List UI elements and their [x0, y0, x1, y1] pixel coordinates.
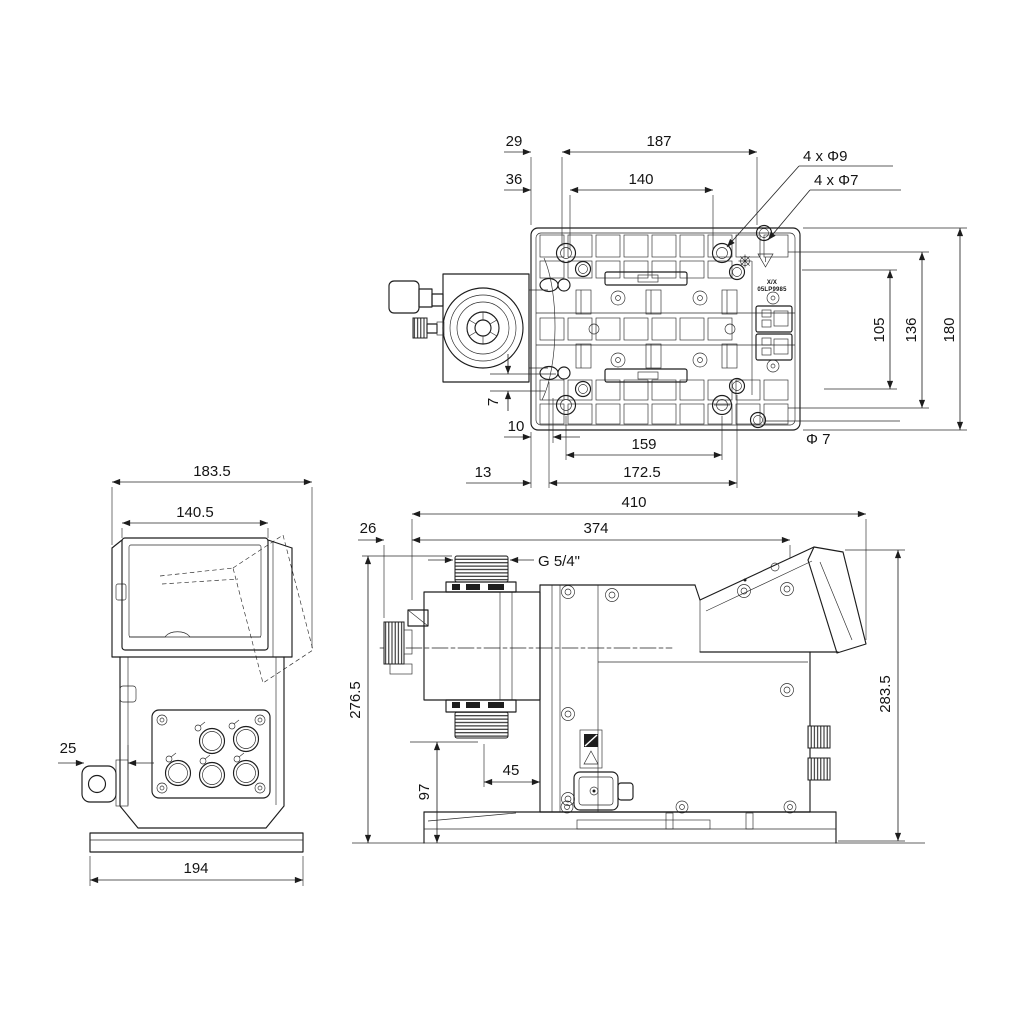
dim-172-5: 172.5 [549, 382, 737, 488]
dim-105-label: 105 [871, 317, 888, 342]
dim-10: 10 [504, 398, 580, 488]
drawing-svg: X/X 05LP9985 [0, 0, 1024, 1024]
dim-140-5: 140.5 [122, 504, 268, 538]
open-cover-dashed [160, 535, 313, 683]
wall-bracket [82, 760, 128, 806]
dim-183-5-label: 183.5 [193, 463, 231, 480]
top-view-dimensions: 29 187 36 140 4 x Φ9 4 x Φ7 [466, 133, 967, 488]
dim-140-label: 140 [628, 171, 653, 188]
side-view-dimensions: 410 374 26 G 5/4" 276.5 [347, 494, 905, 843]
leader-4x-dia7: 4 x Φ7 [768, 172, 901, 240]
dim-283-5-label: 283.5 [877, 675, 894, 713]
dim-140: 140 [570, 171, 713, 190]
dim-45: 45 [484, 744, 540, 787]
connector-plate [152, 710, 270, 798]
leader-dia7-label: Φ 7 [806, 431, 830, 448]
front-view: 183.5 140.5 25 194 [58, 463, 313, 886]
front-base [90, 833, 303, 852]
dim-187-label: 187 [646, 133, 671, 150]
dim-29: 29 [504, 133, 531, 152]
dim-172-5-label: 172.5 [623, 464, 661, 481]
side-view: 410 374 26 G 5/4" 276.5 [347, 494, 925, 843]
side-cable-glands [808, 726, 830, 780]
dim-159-label: 159 [631, 436, 656, 453]
dim-45-label: 45 [503, 762, 520, 779]
top-view: X/X 05LP9985 [389, 133, 967, 488]
dim-13: 13 [466, 464, 531, 483]
dim-374-label: 374 [583, 520, 608, 537]
leader-4x-dia9: 4 x Φ9 [727, 148, 893, 247]
dim-180: 180 [941, 228, 960, 430]
side-housing [540, 547, 866, 812]
side-base [424, 801, 836, 843]
dim-36: 36 [504, 171, 531, 190]
dim-105: 105 [871, 270, 890, 389]
dim-25-label: 25 [60, 740, 77, 757]
front-housing [112, 535, 313, 828]
clamp-brackets [576, 290, 737, 368]
mains-connector [574, 772, 633, 810]
motor-connector [389, 281, 443, 313]
dim-410-label: 410 [621, 494, 646, 511]
dim-410: 410 [412, 494, 866, 514]
dim-7-label: 7 [485, 398, 502, 406]
dim-183-5: 183.5 [112, 463, 312, 482]
plate-connector-panel [756, 292, 792, 372]
mounting-plate: X/X 05LP9985 [531, 226, 800, 431]
cable-glands [166, 720, 259, 788]
pump-head-side-view [380, 556, 672, 738]
dim-26: 26 [358, 520, 384, 618]
dim-136-label: 136 [903, 317, 920, 342]
side-valve-assembly [384, 610, 428, 674]
tilted-control-panel [695, 547, 866, 653]
dim-180-label: 180 [941, 317, 958, 342]
dim-36-label: 36 [506, 171, 523, 188]
thread-label-text: G 5/4" [538, 553, 580, 570]
dim-13-label: 13 [475, 464, 492, 481]
suction-thread [455, 712, 508, 738]
control-panel [122, 538, 268, 650]
dim-194-label: 194 [183, 860, 208, 877]
engineering-drawing-canvas: X/X 05LP9985 [0, 0, 1024, 1024]
dim-283-5: 283.5 [838, 550, 905, 841]
dim-194: 194 [90, 856, 303, 886]
dim-97: 97 [410, 742, 478, 843]
dim-276-5-label: 276.5 [347, 681, 364, 719]
pump-head-top-view [389, 258, 555, 400]
dim-97-label: 97 [416, 784, 433, 801]
plate-label-top: X/X [767, 280, 777, 286]
dim-159: 159 [566, 416, 722, 460]
plate-label-bottom: 05LP9985 [757, 287, 787, 293]
dim-136: 136 [903, 252, 922, 408]
dim-140-5-label: 140.5 [176, 504, 214, 521]
dim-374: 374 [412, 520, 790, 558]
dim-10-label: 10 [508, 418, 525, 435]
leader-4x-dia7-label: 4 x Φ7 [814, 172, 859, 189]
dim-26-label: 26 [360, 520, 377, 537]
front-view-dimensions: 183.5 140.5 25 194 [58, 463, 312, 886]
dim-29-label: 29 [506, 133, 523, 150]
dim-187: 187 [562, 133, 757, 152]
bleed-valve-knob [413, 318, 444, 338]
plate-warning-icons: X/X 05LP9985 [739, 254, 788, 293]
discharge-thread [455, 556, 508, 582]
warning-sticker [580, 730, 602, 768]
leader-4x-dia9-label: 4 x Φ9 [803, 148, 848, 165]
